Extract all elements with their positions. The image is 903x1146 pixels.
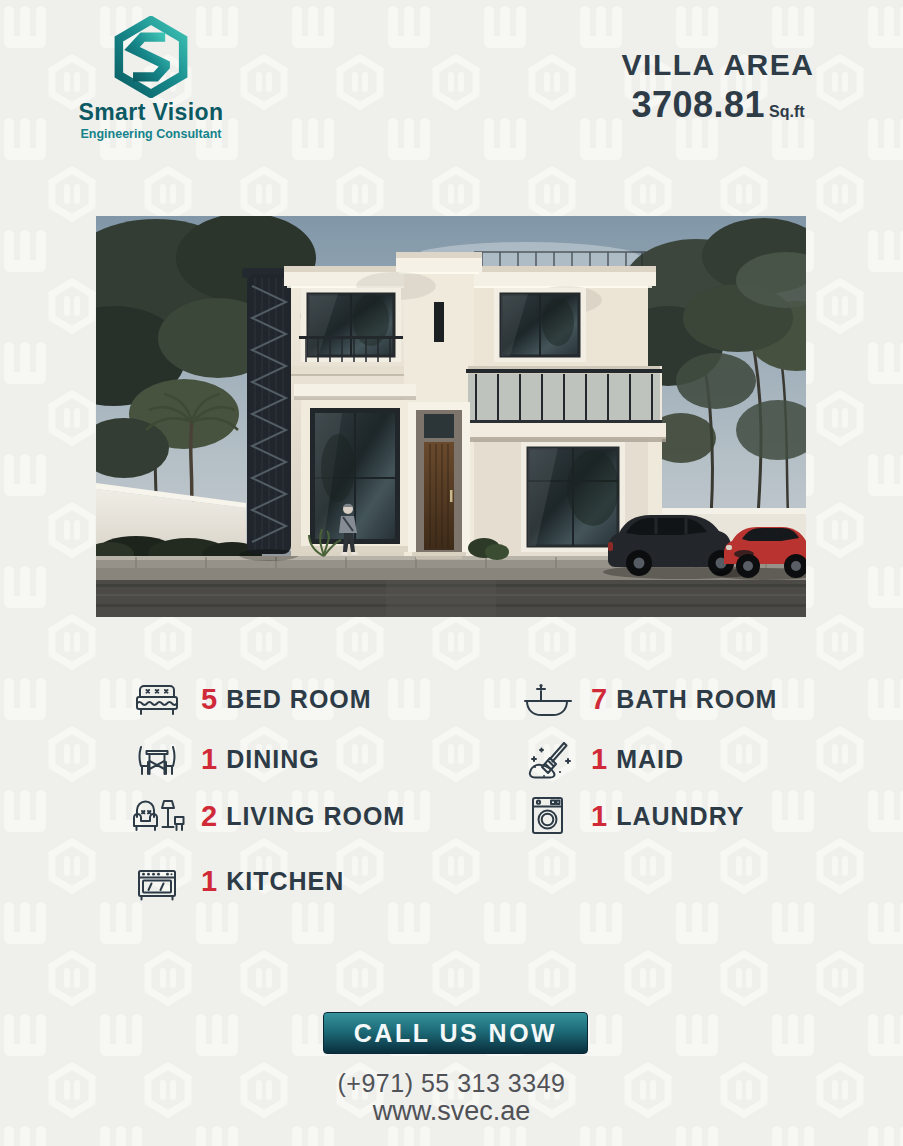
brand-block: Smart Vision Engineering Consultant [34, 16, 268, 141]
feature-count: 7 [591, 683, 607, 716]
villa-area-value: 3708.81 [631, 84, 765, 125]
feature-label: LAUNDRY [616, 802, 744, 831]
feature-count: 1 [201, 743, 217, 776]
feature-bedrooms: 5 BED ROOM [128, 674, 372, 724]
maid-cleaning-icon [518, 736, 576, 782]
villa-area-label: VILLA AREA [583, 48, 853, 82]
feature-count: 1 [591, 743, 607, 776]
feature-kitchen: 1 KITCHEN [128, 856, 344, 906]
spiral-staircase [239, 268, 299, 561]
facade-dark-slit [434, 302, 444, 342]
feature-count: 1 [201, 865, 217, 898]
feature-label: LIVING ROOM [226, 802, 405, 831]
living-room-icon [128, 793, 186, 839]
feature-count: 1 [591, 800, 607, 833]
website-url[interactable]: www.svec.ae [0, 1096, 903, 1127]
feature-bathrooms: 7 BATH ROOM [518, 674, 777, 724]
feature-label: KITCHEN [226, 867, 344, 896]
feature-dining: 1 DINING [128, 734, 320, 784]
feature-laundry: 1 LAUNDRY [518, 791, 744, 841]
villa-area-unit: Sq.ft [769, 103, 805, 120]
feature-living-room: 2 LIVING ROOM [128, 791, 405, 841]
feature-label: DINING [226, 745, 320, 774]
bed-icon [128, 676, 186, 722]
upper-right-window [494, 288, 586, 362]
brand-tagline: Engineering Consultant [34, 127, 268, 141]
entrance [408, 402, 470, 559]
road [96, 580, 806, 617]
dining-icon [128, 736, 186, 782]
villa-area-block: VILLA AREA 3708.81Sq.ft [583, 48, 853, 126]
phone-number[interactable]: (+971) 55 313 3349 [0, 1069, 903, 1098]
upper-left-window [299, 288, 403, 362]
feature-label: MAID [616, 745, 684, 774]
entry-door [424, 442, 454, 550]
feature-label: BED ROOM [226, 685, 372, 714]
kitchen-stove-icon [128, 858, 186, 904]
villa-render-image [96, 216, 806, 617]
bathtub-icon [518, 676, 576, 722]
feature-label: BATH ROOM [616, 685, 777, 714]
smart-vision-logo-icon [99, 16, 203, 98]
brand-name: Smart Vision [34, 99, 268, 126]
balcony [458, 366, 666, 442]
feature-count: 2 [201, 800, 217, 833]
call-us-now-button[interactable]: CALL US NOW [323, 1012, 588, 1054]
feature-maid: 1 MAID [518, 734, 684, 784]
washing-machine-icon [518, 793, 576, 839]
feature-count: 5 [201, 683, 217, 716]
